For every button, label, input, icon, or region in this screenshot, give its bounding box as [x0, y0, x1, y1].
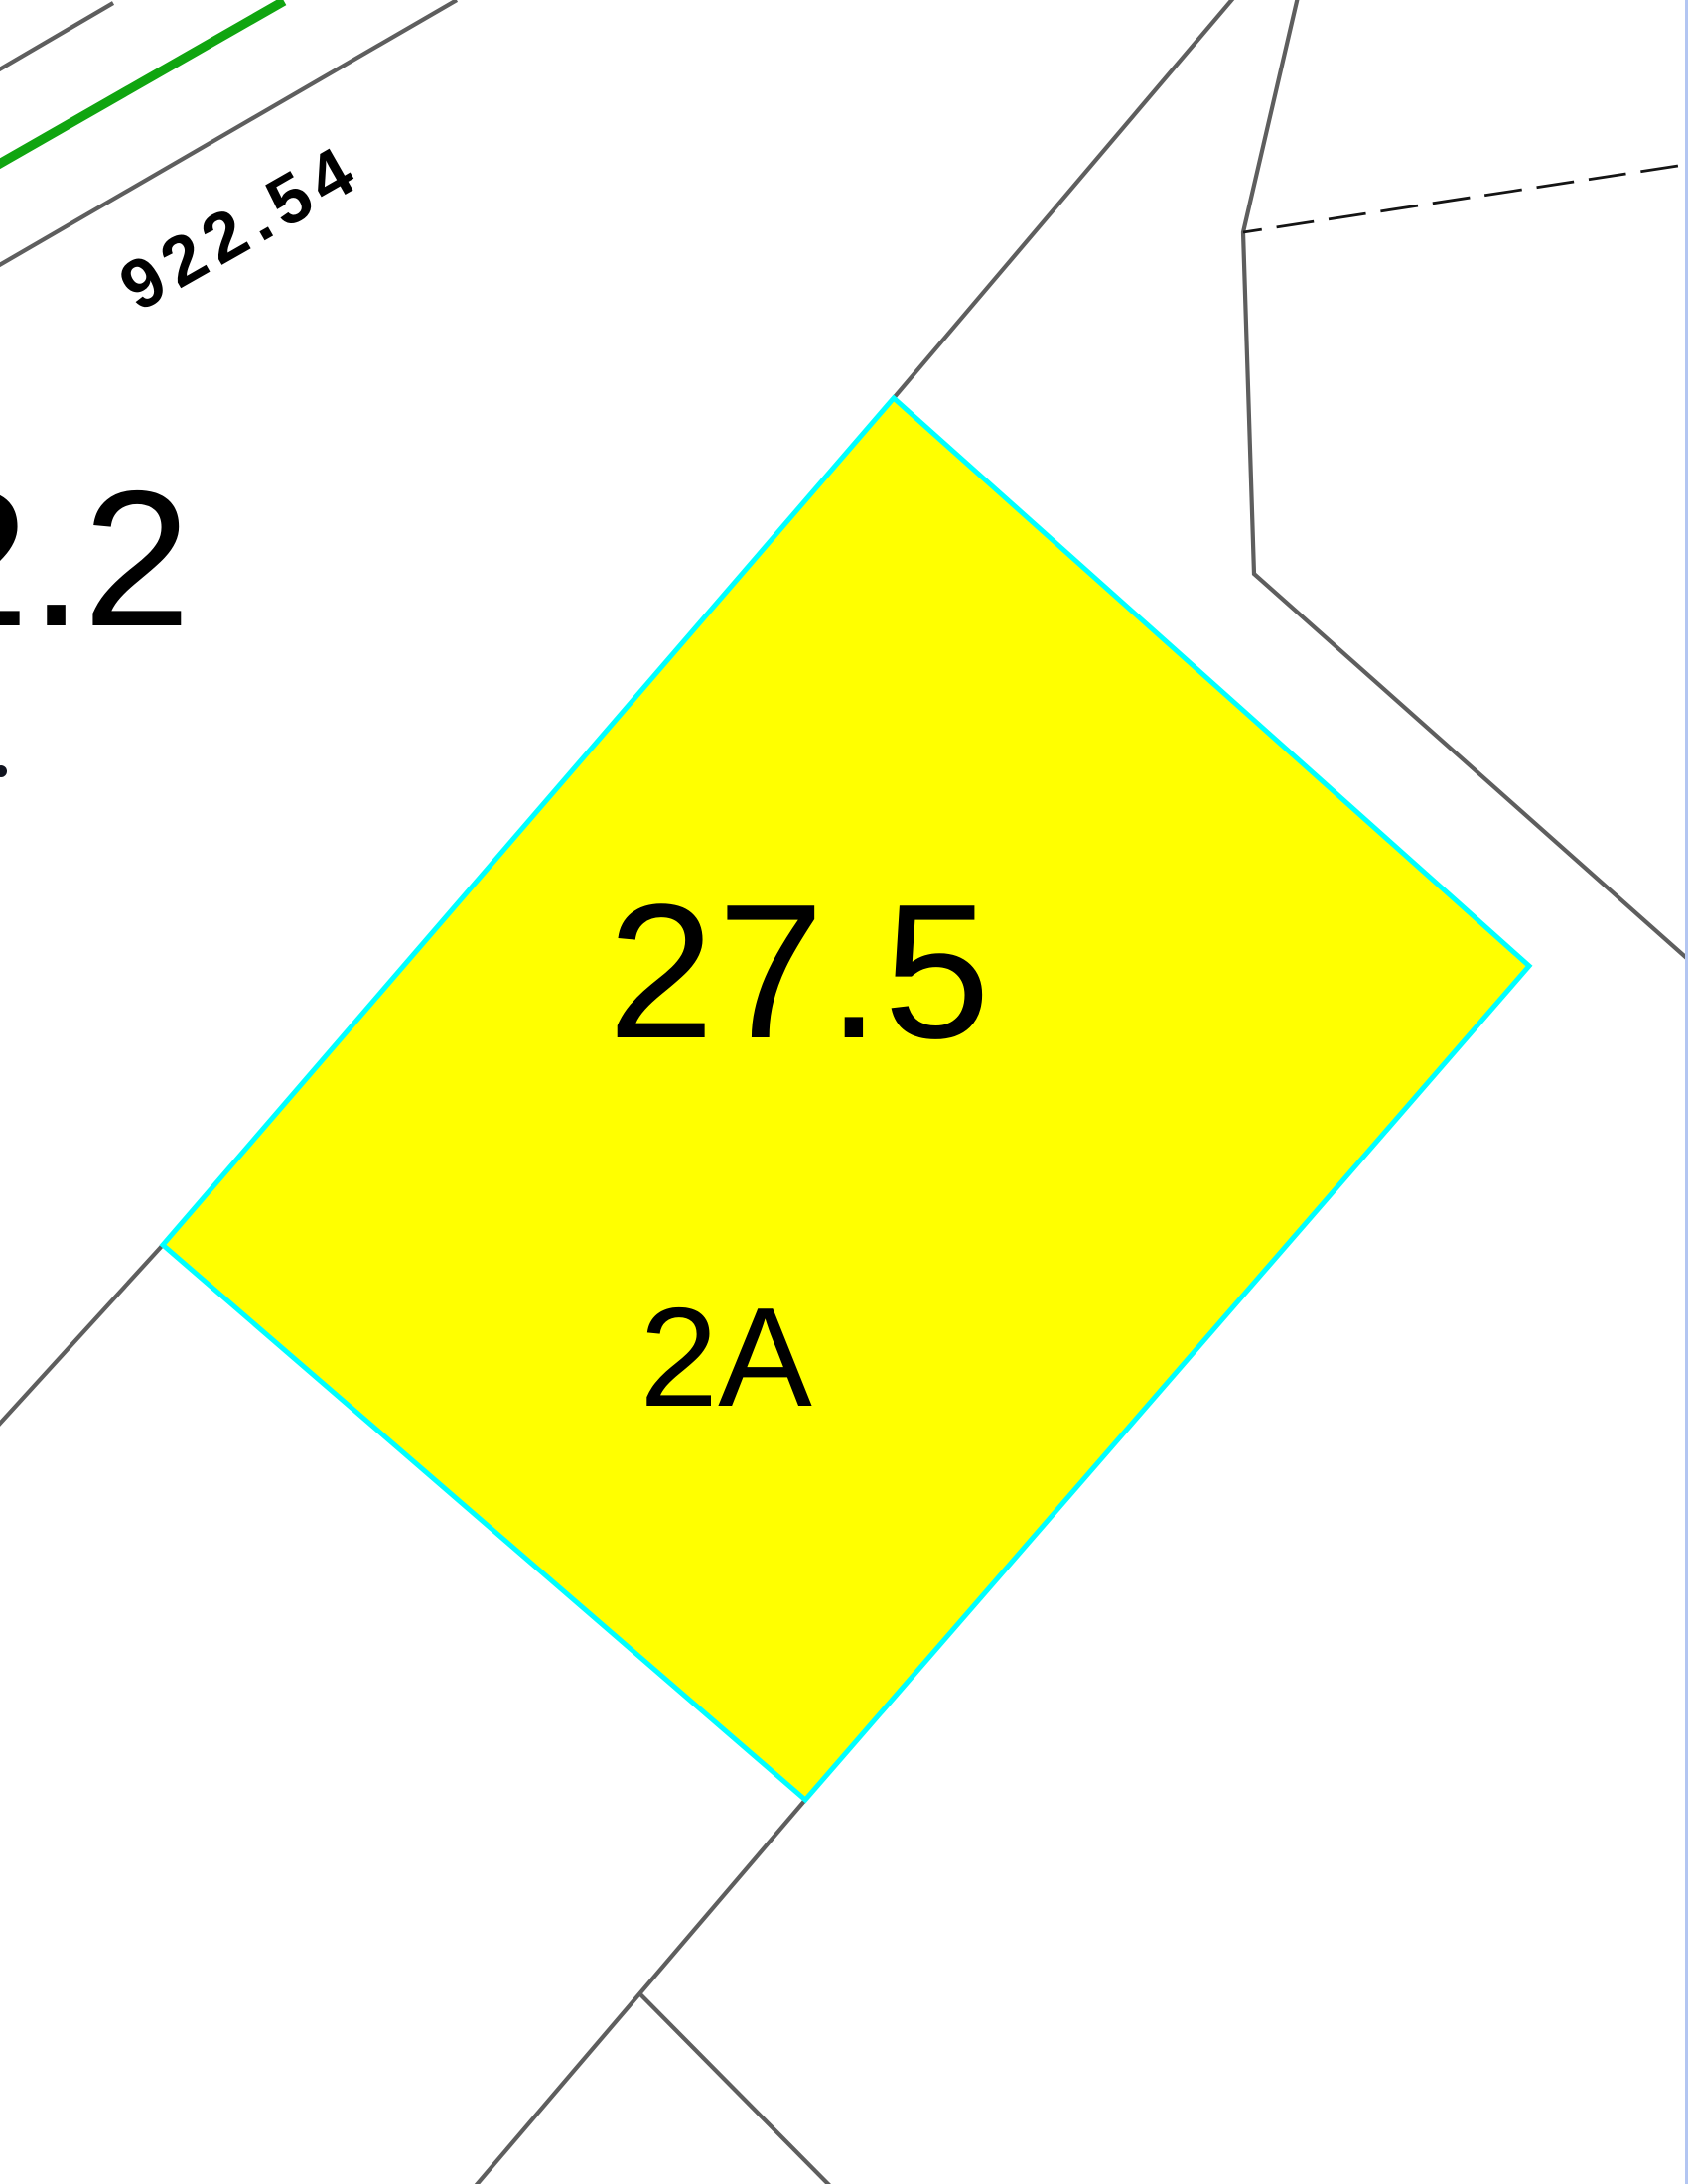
svg-text:2A: 2A: [639, 1279, 812, 1436]
svg-text:27.5: 27.5: [608, 864, 993, 1078]
svg-text:2.2: 2.2: [0, 451, 191, 667]
